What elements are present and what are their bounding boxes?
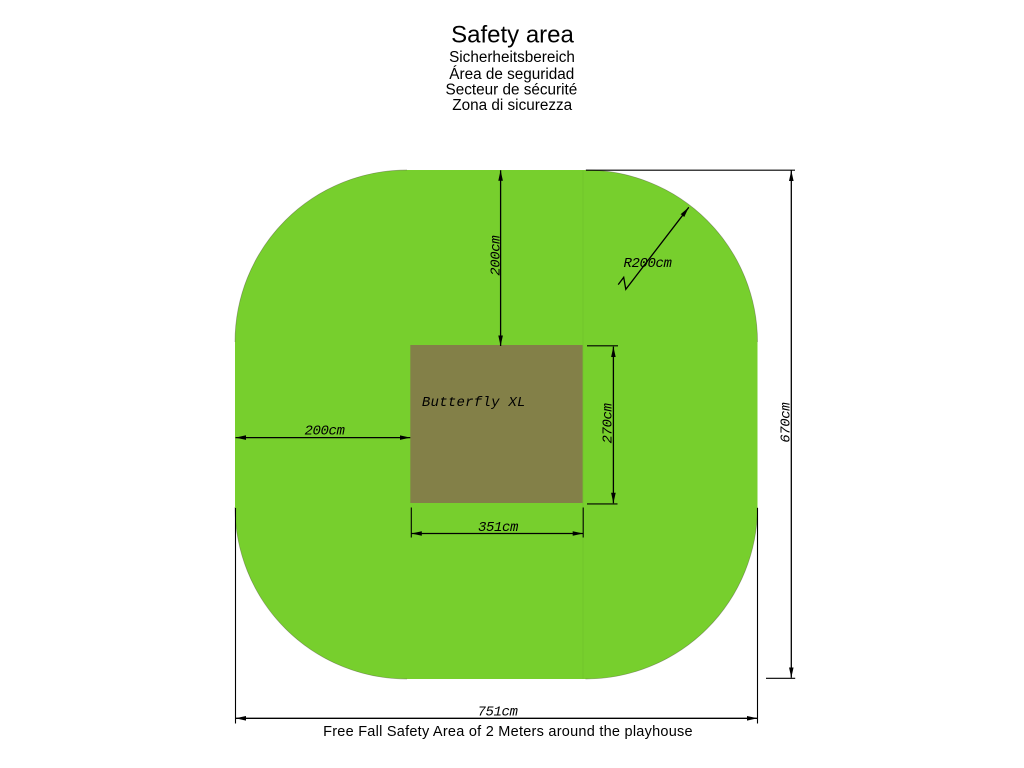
svg-text:751cm: 751cm (477, 705, 518, 721)
svg-text:R200cm: R200cm (624, 256, 673, 272)
svg-text:Sicherheitsbereich: Sicherheitsbereich (449, 49, 575, 66)
svg-text:Butterfly XL: Butterfly XL (422, 395, 526, 411)
svg-text:270cm: 270cm (601, 403, 617, 444)
svg-text:200cm: 200cm (304, 424, 345, 440)
svg-text:Área de seguridad: Área de seguridad (449, 66, 574, 83)
svg-text:351cm: 351cm (478, 520, 519, 536)
svg-text:670cm: 670cm (779, 402, 795, 443)
svg-text:Free Fall Safety Area of 2 Met: Free Fall Safety Area of 2 Meters around… (323, 724, 693, 740)
svg-text:Zona di sicurezza: Zona di sicurezza (452, 97, 572, 114)
svg-text:Safety area: Safety area (451, 21, 574, 48)
svg-text:Secteur de sécurité: Secteur de sécurité (446, 81, 578, 98)
svg-text:200cm: 200cm (488, 235, 504, 276)
